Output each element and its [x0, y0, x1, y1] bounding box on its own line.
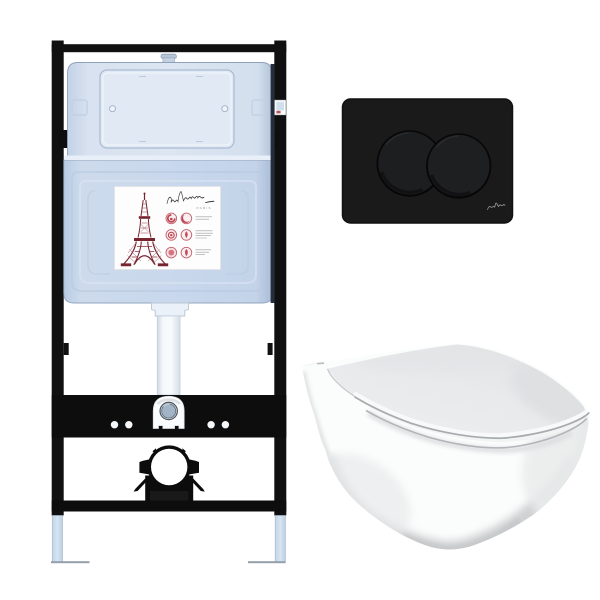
svg-text:PARIS: PARIS — [197, 206, 212, 210]
